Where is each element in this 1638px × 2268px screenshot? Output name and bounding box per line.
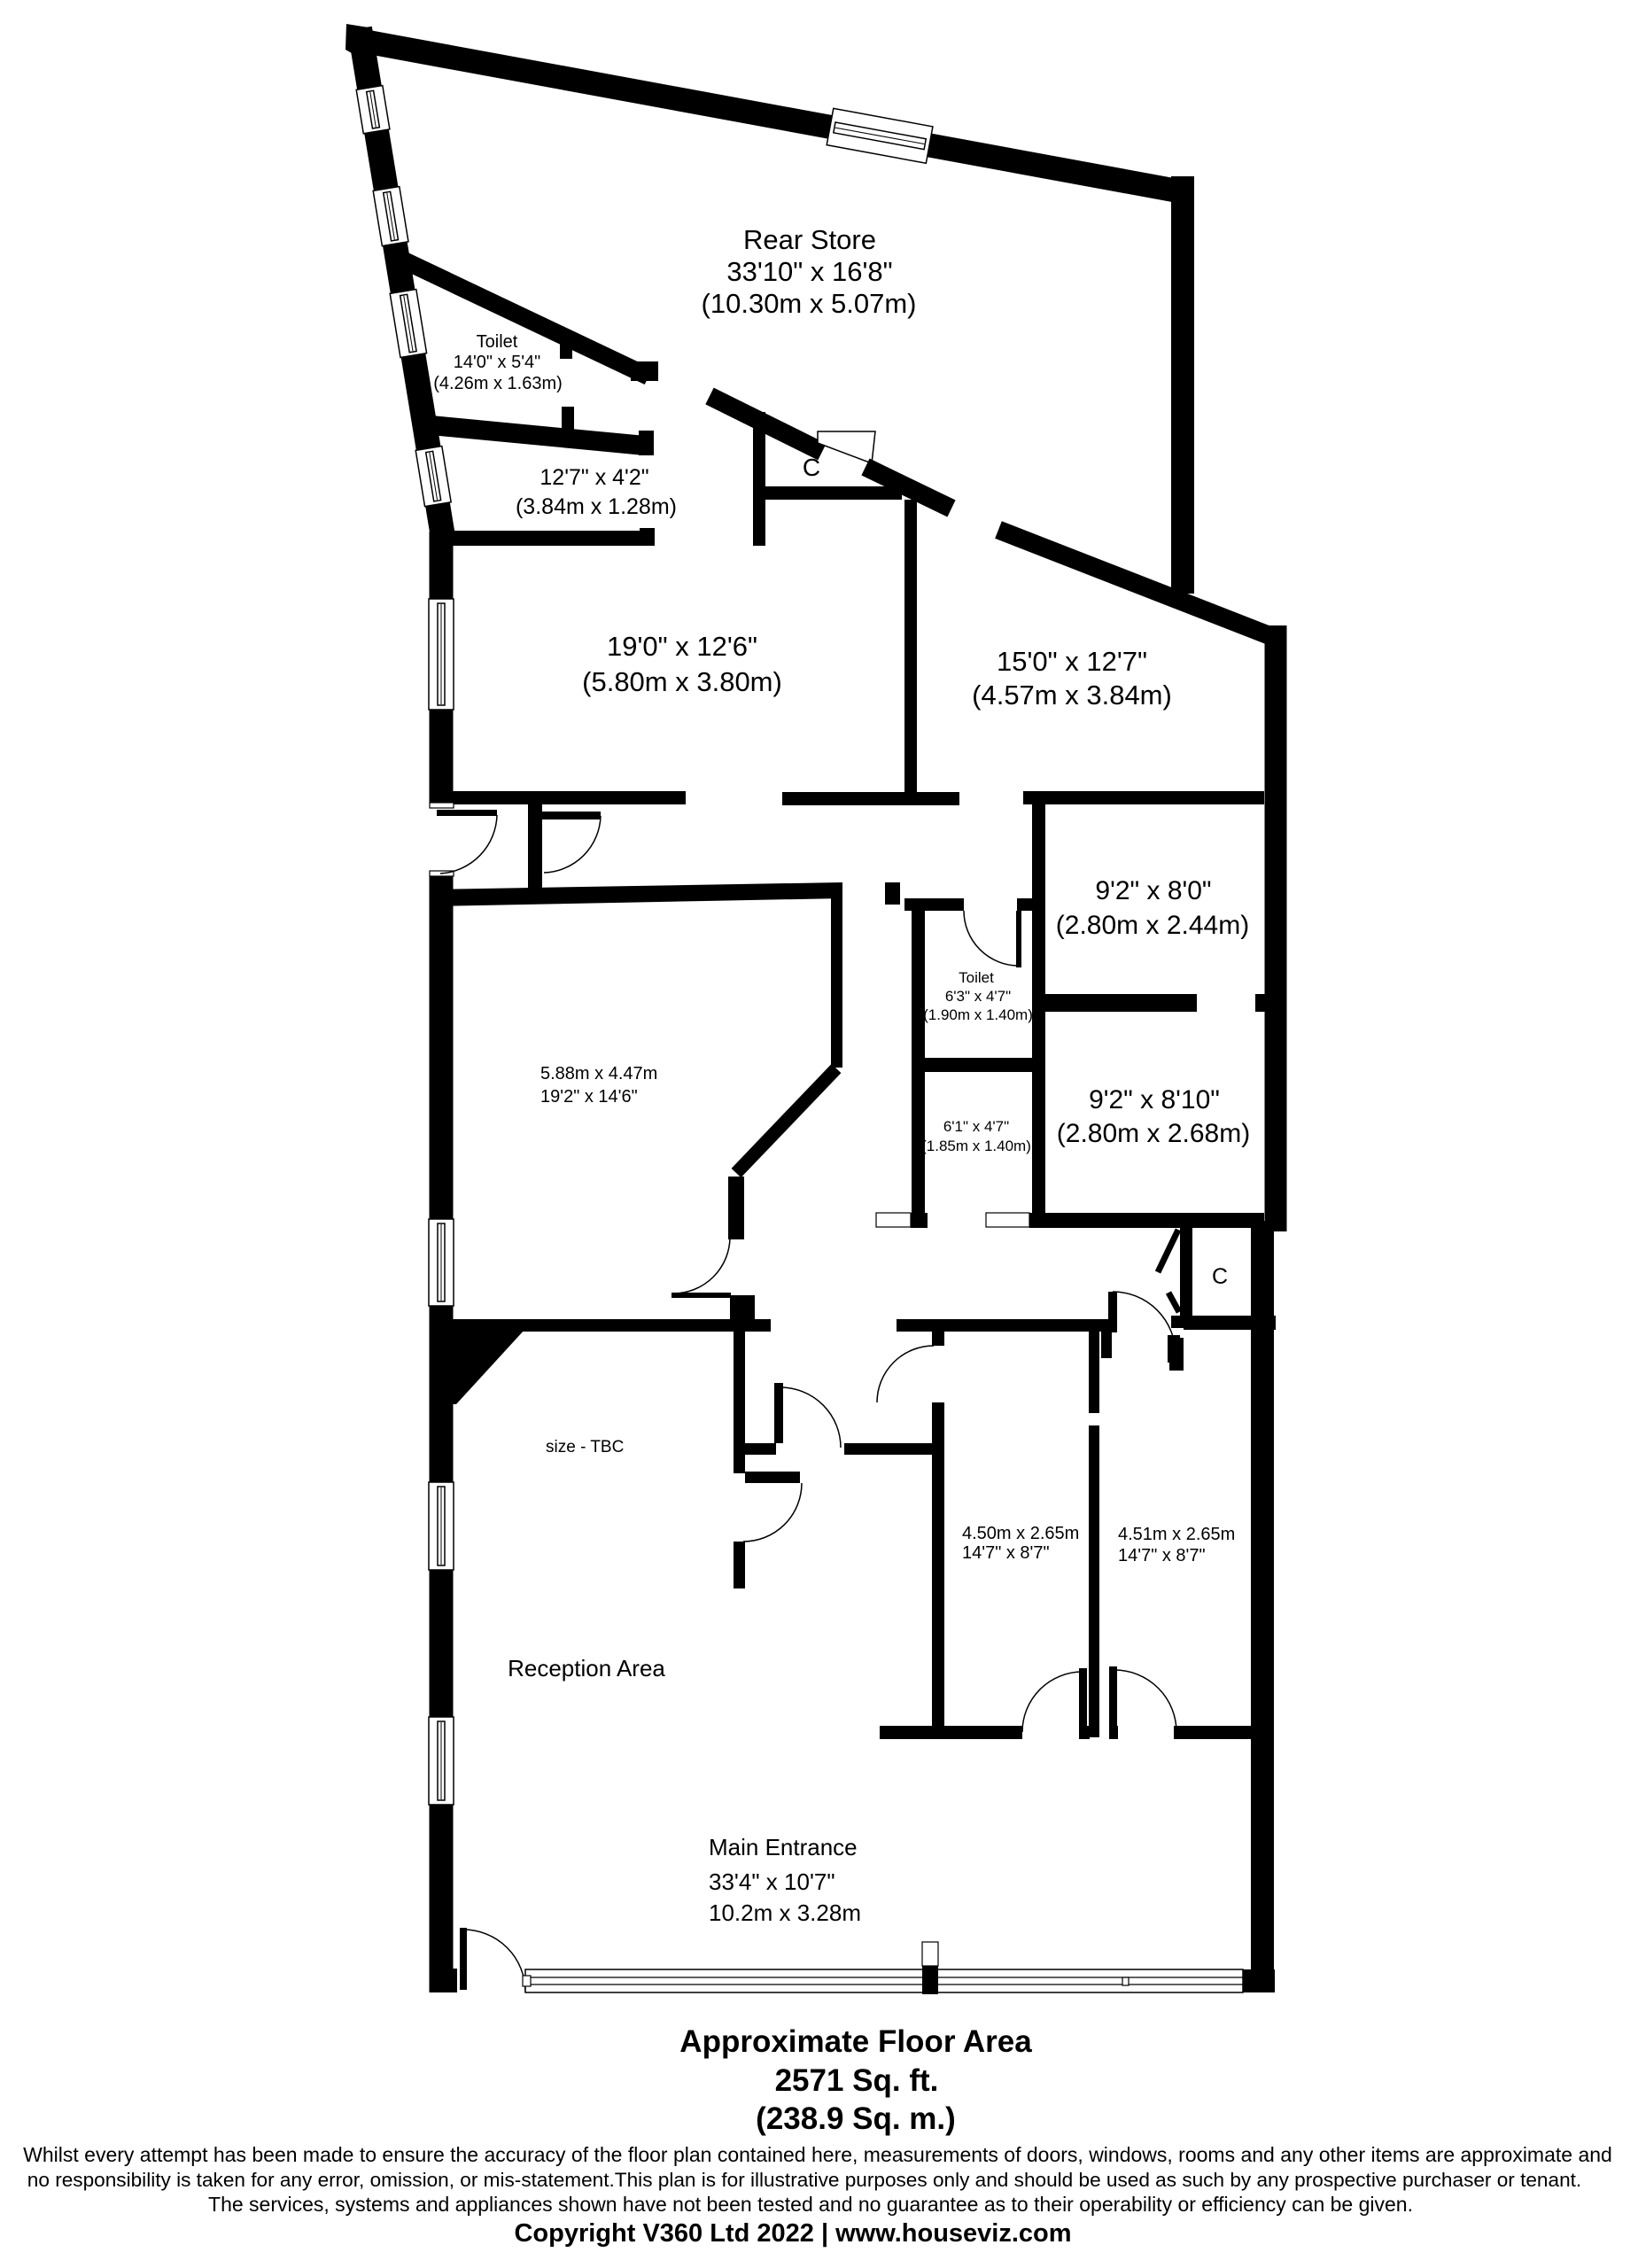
- svg-text:14'7" x 8'7": 14'7" x 8'7": [1118, 1546, 1206, 1565]
- svg-text:no responsibility is taken for: no responsibility is taken for any error…: [27, 2169, 1581, 2191]
- svg-text:(10.30m x 5.07m): (10.30m x 5.07m): [702, 288, 917, 319]
- svg-text:(4.26m x 1.63m): (4.26m x 1.63m): [433, 374, 563, 393]
- svg-text:10.2m x 3.28m: 10.2m x 3.28m: [709, 1899, 861, 1926]
- svg-text:6'3" x 4'7": 6'3" x 4'7": [945, 988, 1011, 1005]
- svg-text:19'0" x 12'6": 19'0" x 12'6": [607, 631, 757, 662]
- svg-text:9'2" x 8'0": 9'2" x 8'0": [1095, 876, 1211, 905]
- svg-text:(3.84m x 1.28m): (3.84m x 1.28m): [516, 494, 677, 519]
- svg-text:(238.9 Sq. m.): (238.9 Sq. m.): [756, 2101, 956, 2136]
- svg-text:Approximate Floor Area: Approximate Floor Area: [679, 2024, 1032, 2059]
- svg-text:15'0" x 12'7": 15'0" x 12'7": [997, 646, 1147, 677]
- svg-text:33'4" x 10'7": 33'4" x 10'7": [709, 1868, 835, 1895]
- svg-text:The services, systems and appl: The services, systems and appliances sho…: [208, 2193, 1413, 2216]
- svg-text:(4.57m x 3.84m): (4.57m x 3.84m): [972, 680, 1172, 711]
- svg-text:(5.80m x 3.80m): (5.80m x 3.80m): [582, 666, 782, 697]
- svg-text:Rear Store: Rear Store: [743, 224, 876, 255]
- svg-text:4.50m x 2.65m: 4.50m x 2.65m: [962, 1524, 1079, 1543]
- svg-text:C: C: [1212, 1264, 1228, 1289]
- svg-text:2571 Sq. ft.: 2571 Sq. ft.: [775, 2063, 939, 2098]
- svg-text:size - TBC: size - TBC: [546, 1438, 624, 1456]
- svg-text:14'7" x 8'7": 14'7" x 8'7": [962, 1543, 1050, 1563]
- svg-text:14'0" x 5'4": 14'0" x 5'4": [454, 353, 541, 372]
- svg-text:(1.90m x 1.40m): (1.90m x 1.40m): [923, 1006, 1033, 1023]
- svg-text:9'2" x 8'10": 9'2" x 8'10": [1089, 1085, 1220, 1115]
- svg-text:6'1" x 4'7": 6'1" x 4'7": [943, 1118, 1009, 1135]
- svg-text:Copyright V360 Ltd 2022 | www.: Copyright V360 Ltd 2022 | www.houseviz.c…: [514, 2219, 1071, 2248]
- svg-text:Main Entrance: Main Entrance: [709, 1834, 858, 1860]
- svg-text:Toilet: Toilet: [959, 969, 994, 986]
- svg-text:Whilst every attempt has been: Whilst every attempt has been made to en…: [23, 2143, 1612, 2166]
- svg-text:33'10" x 16'8": 33'10" x 16'8": [726, 256, 892, 287]
- svg-text:(2.80m x 2.44m): (2.80m x 2.44m): [1056, 911, 1249, 940]
- svg-text:4.51m x 2.65m: 4.51m x 2.65m: [1118, 1525, 1235, 1544]
- svg-text:19'2" x 14'6": 19'2" x 14'6": [540, 1087, 638, 1107]
- svg-text:5.88m x 4.47m: 5.88m x 4.47m: [540, 1064, 657, 1084]
- svg-text:Reception Area: Reception Area: [508, 1655, 665, 1682]
- svg-text:(2.80m x 2.68m): (2.80m x 2.68m): [1057, 1119, 1250, 1148]
- svg-text:C: C: [803, 454, 820, 481]
- svg-text:12'7" x 4'2": 12'7" x 4'2": [540, 465, 648, 490]
- svg-text:(1.85m x 1.40m): (1.85m x 1.40m): [921, 1138, 1031, 1154]
- svg-text:Toilet: Toilet: [477, 332, 518, 352]
